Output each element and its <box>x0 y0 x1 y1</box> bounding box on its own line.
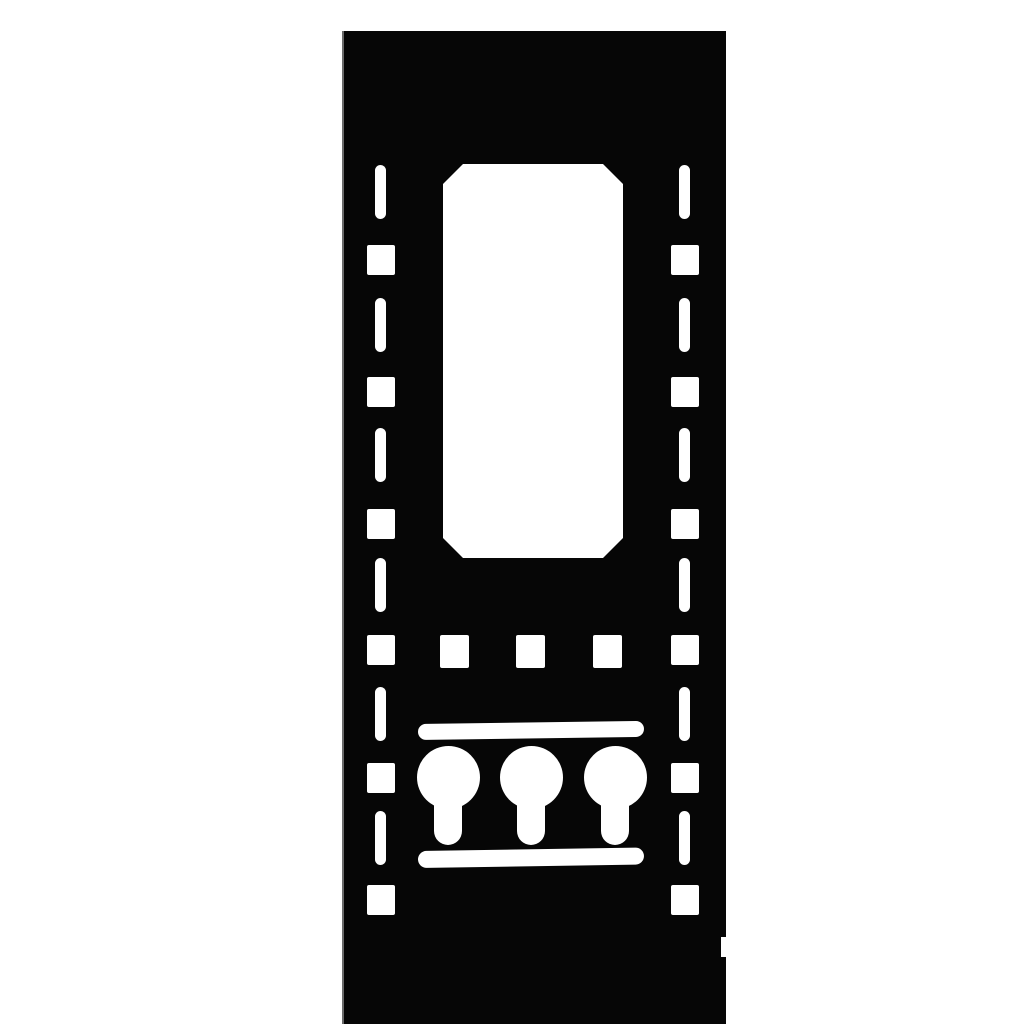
rail-slot-cutout-left <box>375 428 386 482</box>
vent-square-cutout <box>516 635 545 668</box>
rack-rail-panel <box>342 31 726 1024</box>
keyhole-stem-cutout <box>517 777 545 845</box>
rail-slot-cutout-left <box>375 687 386 741</box>
rail-slot-cutout-left <box>375 558 386 612</box>
product-image-canvas <box>0 0 1024 1024</box>
window-cutout <box>443 164 623 558</box>
rail-slot-cutout-left <box>375 165 386 219</box>
rail-square-cutout-right <box>671 245 699 275</box>
rail-square-cutout-right <box>671 377 699 407</box>
rail-square-cutout-right <box>671 635 699 665</box>
rail-square-cutout-left <box>367 377 395 407</box>
rail-square-cutout-right <box>671 885 699 915</box>
rail-slot-cutout-right <box>679 165 690 219</box>
panel-edge-highlight <box>342 31 344 1024</box>
rail-square-cutout-left <box>367 509 395 539</box>
rail-slot-cutout-right <box>679 428 690 482</box>
rail-square-cutout-left <box>367 763 395 793</box>
rail-square-cutout-left <box>367 635 395 665</box>
rail-square-cutout-left <box>367 245 395 275</box>
rail-square-cutout-right <box>671 509 699 539</box>
rail-slot-cutout-right <box>679 687 690 741</box>
rail-slot-cutout-right <box>679 558 690 612</box>
rail-slot-cutout-right <box>679 811 690 865</box>
rail-slot-cutout-left <box>375 811 386 865</box>
top-slot-bar-cutout <box>418 721 644 740</box>
rail-slot-cutout-right <box>679 298 690 352</box>
keyhole-stem-cutout <box>434 777 462 845</box>
rail-square-cutout-left <box>367 885 395 915</box>
rail-square-cutout-right <box>671 763 699 793</box>
bottom-slot-bar-cutout <box>418 847 644 868</box>
edge-notch-cutout <box>721 937 726 957</box>
keyhole-stem-cutout <box>601 777 629 845</box>
vent-square-cutout <box>593 635 622 668</box>
rail-slot-cutout-left <box>375 298 386 352</box>
vent-square-cutout <box>440 635 469 668</box>
